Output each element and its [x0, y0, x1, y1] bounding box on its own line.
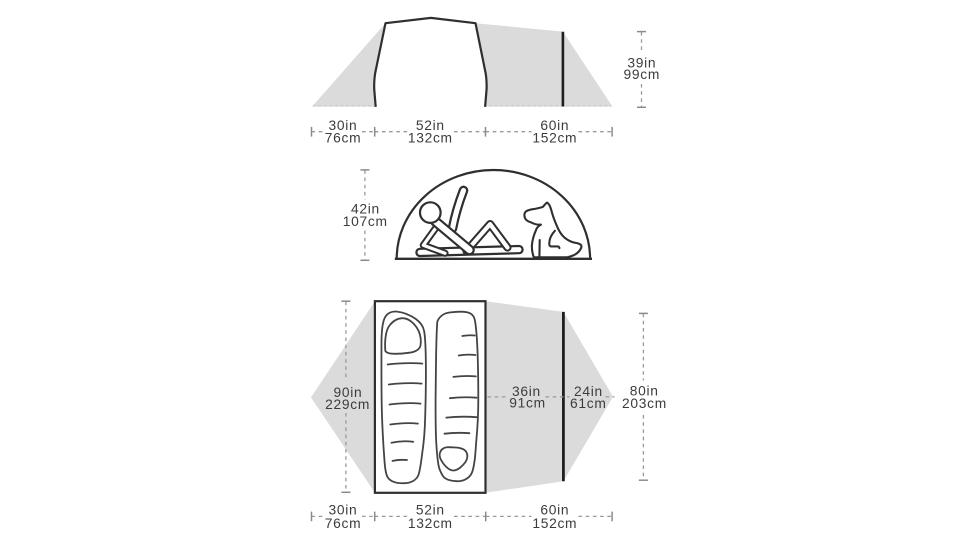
svg-text:76cm: 76cm: [325, 130, 362, 145]
svg-text:76cm: 76cm: [325, 516, 362, 531]
svg-text:152cm: 152cm: [532, 130, 577, 145]
svg-text:107cm: 107cm: [343, 214, 388, 229]
svg-text:132cm: 132cm: [408, 130, 453, 145]
svg-text:203cm: 203cm: [622, 396, 667, 411]
svg-text:152cm: 152cm: [532, 516, 577, 531]
svg-text:229cm: 229cm: [325, 397, 370, 412]
svg-text:99cm: 99cm: [624, 67, 661, 82]
svg-text:61cm: 61cm: [570, 396, 607, 411]
svg-text:91cm: 91cm: [509, 396, 546, 411]
svg-text:132cm: 132cm: [408, 516, 453, 531]
